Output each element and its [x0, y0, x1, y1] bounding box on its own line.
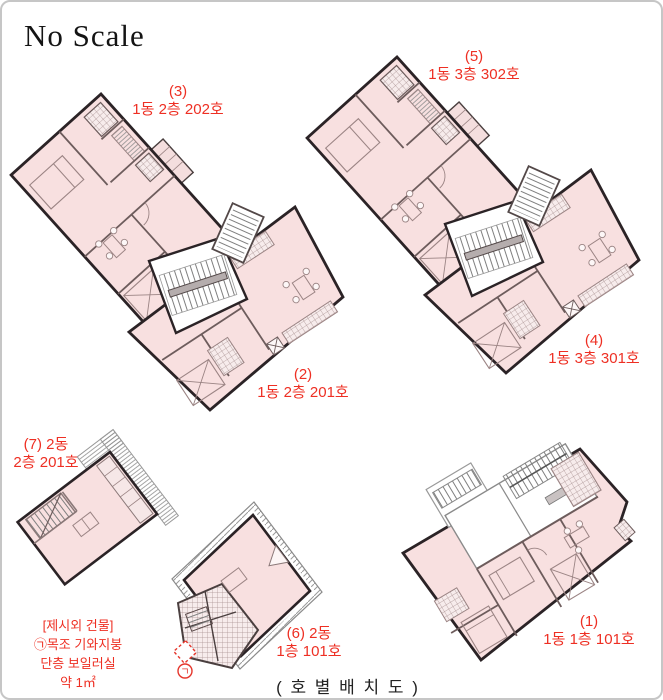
unit-label-6: (6) 2동 1층 101호 [276, 625, 341, 660]
unit-label-3: (3) 1동 2층 202호 [132, 83, 223, 118]
building-1-floor-2-plan [11, 83, 343, 410]
marker-letter: ㄱ [180, 667, 189, 678]
site-plan-page: No Scale [0, 0, 663, 700]
unit-label-2: (2) 1동 2층 201호 [257, 366, 348, 401]
unit-label-1: (1) 1동 1층 101호 [543, 613, 634, 648]
unit-label-7: (7) 2동 2층 201호 [13, 436, 78, 471]
extra-building-note: [제시외 건물] ㉠목조 기와지붕 단층 보일러실 약 1㎡ [34, 617, 122, 692]
drawing-caption: ( 호 별 배 치 도 ) [276, 673, 420, 698]
building-1-floor-3-plan [307, 46, 639, 373]
unit-label-5: (5) 1동 3층 302호 [428, 48, 519, 83]
unit-label-4: (4) 1동 3층 301호 [548, 332, 639, 367]
